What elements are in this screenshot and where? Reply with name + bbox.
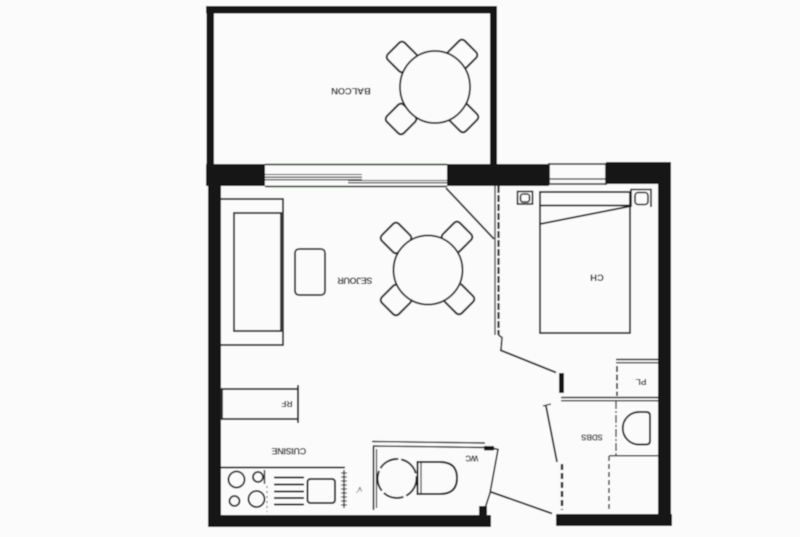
svg-text:SDBS: SDBS xyxy=(580,433,602,442)
svg-text:RF: RF xyxy=(281,399,292,409)
svg-text:WC: WC xyxy=(465,454,478,463)
svg-text:PL: PL xyxy=(636,377,647,387)
svg-text:SEJOUR: SEJOUR xyxy=(337,276,373,286)
svg-text:CUISINE: CUISINE xyxy=(272,446,307,456)
svg-text:v’: v’ xyxy=(356,485,362,494)
svg-text:CH: CH xyxy=(590,272,604,283)
svg-text:BALCON: BALCON xyxy=(331,85,371,96)
